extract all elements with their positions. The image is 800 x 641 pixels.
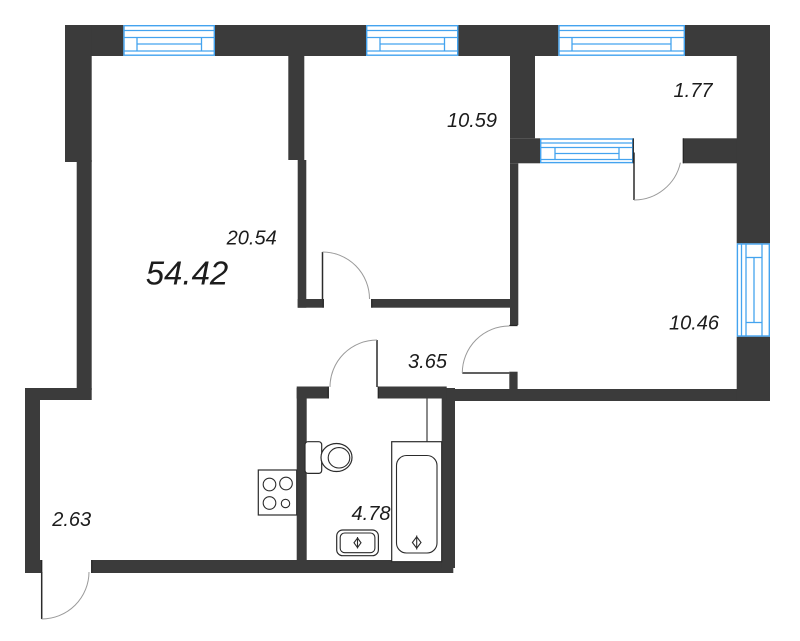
wall <box>683 138 745 163</box>
wall <box>442 388 455 568</box>
wall <box>77 160 92 390</box>
door-icon <box>633 138 683 200</box>
wall <box>378 387 446 399</box>
wall <box>509 372 517 389</box>
wall <box>737 337 770 401</box>
window-icon <box>540 139 633 163</box>
wall <box>458 25 558 56</box>
window-icon <box>558 26 685 56</box>
wall <box>510 138 540 163</box>
wall <box>298 299 324 308</box>
wall <box>510 163 518 325</box>
room-label-hallway: 3.65 <box>408 351 448 373</box>
room-label-bedroom-top: 10.59 <box>447 110 497 132</box>
room-label-balcony-left: 2.63 <box>51 509 91 531</box>
door-swing-arc <box>42 572 89 619</box>
wall <box>297 388 307 560</box>
wall <box>215 25 366 56</box>
sink-icon <box>337 530 379 556</box>
wall <box>65 25 92 162</box>
wall <box>288 56 304 160</box>
door-icon <box>323 252 372 308</box>
door-icon <box>42 560 92 619</box>
room-label-bedroom-right: 10.46 <box>669 313 720 335</box>
window-icon <box>123 26 215 56</box>
wall <box>25 560 42 573</box>
window-icon <box>737 243 769 336</box>
door-swing-arc <box>634 163 680 200</box>
room-label-bathroom: 4.78 <box>352 503 391 525</box>
fixtures <box>258 399 441 562</box>
room-label-balcony-top: 1.77 <box>674 80 714 102</box>
total-area-label: 54.42 <box>146 255 229 292</box>
door-swing-arc <box>323 252 370 299</box>
floor-plan-canvas: 54.42 20.54 10.59 1.77 10.46 3.65 4.78 2… <box>0 0 800 641</box>
door-swing-arc <box>330 340 377 387</box>
door-swing-arc <box>462 326 509 373</box>
door-icon <box>328 340 378 399</box>
wall <box>737 56 770 243</box>
wall <box>298 160 307 308</box>
room-label-living-kitchen: 20.54 <box>226 228 277 250</box>
wall <box>372 299 510 308</box>
wall <box>510 56 535 138</box>
stove-body <box>258 470 296 515</box>
wall <box>297 387 329 399</box>
wall <box>447 389 770 401</box>
stove-icon <box>258 470 296 515</box>
bathtub-icon <box>392 442 442 562</box>
wall <box>25 398 40 573</box>
toilet-tank <box>305 442 322 474</box>
toilet-icon <box>305 442 352 474</box>
wall <box>685 25 770 56</box>
window-icon <box>366 26 458 56</box>
door-icon <box>462 326 517 374</box>
floor-plan: 54.42 20.54 10.59 1.77 10.46 3.65 4.78 2… <box>0 0 800 641</box>
